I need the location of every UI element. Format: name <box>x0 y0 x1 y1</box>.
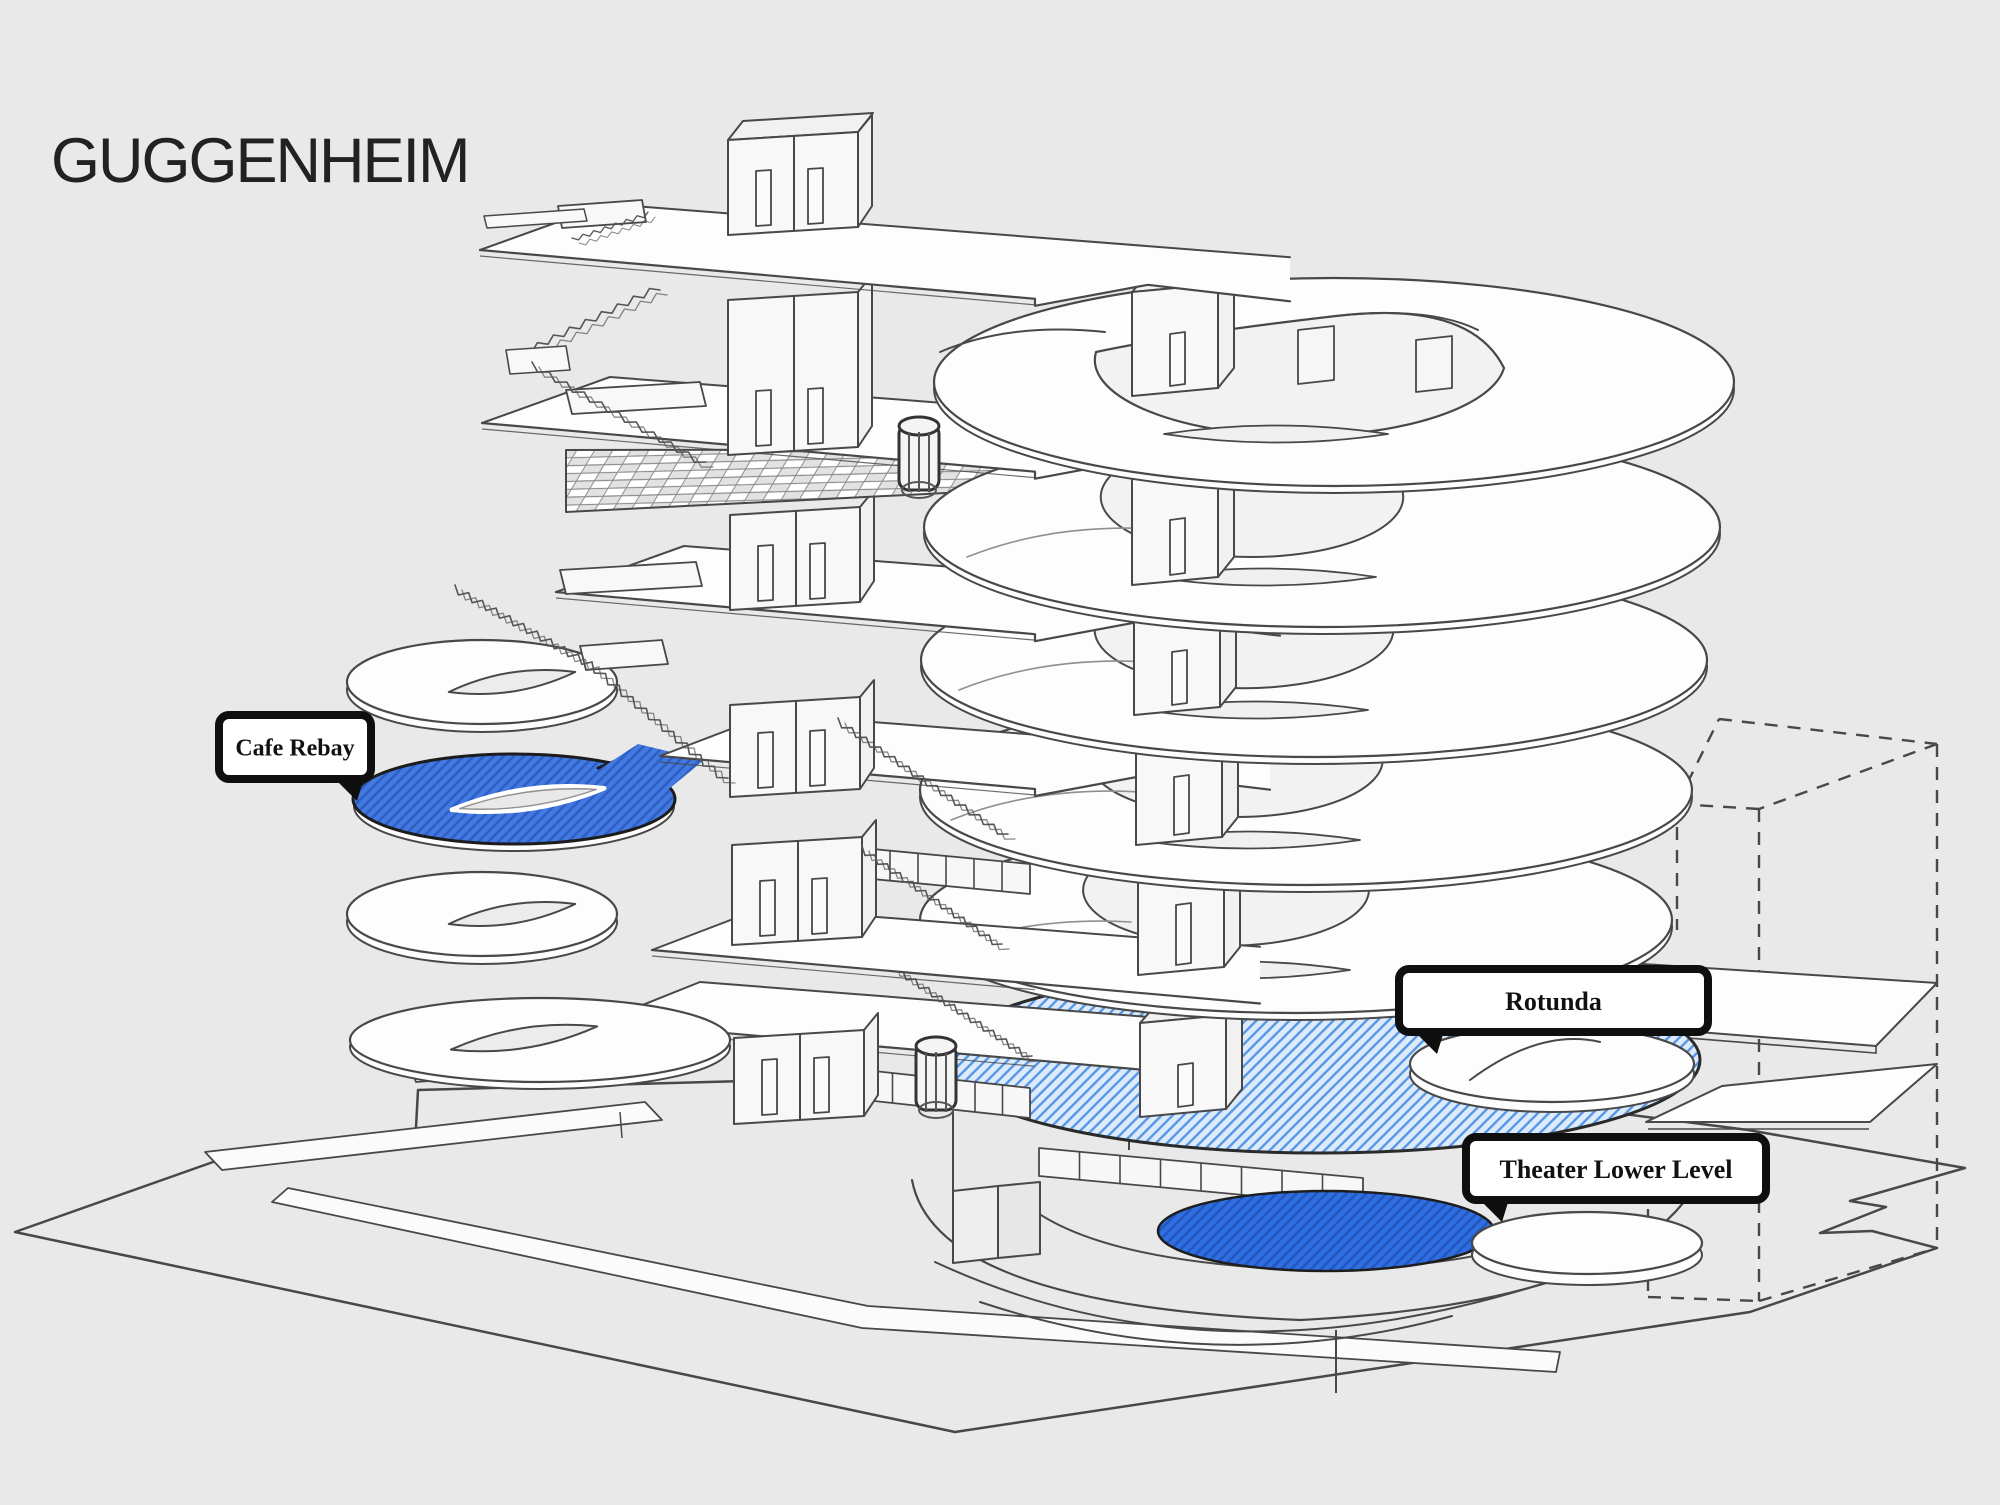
svg-text:Theater Lower Level: Theater Lower Level <box>1500 1155 1733 1184</box>
svg-text:Cafe Rebay: Cafe Rebay <box>235 736 354 762</box>
svg-text:Rotunda: Rotunda <box>1505 987 1602 1016</box>
svg-text:GUGGENHEIM: GUGGENHEIM <box>51 126 469 196</box>
